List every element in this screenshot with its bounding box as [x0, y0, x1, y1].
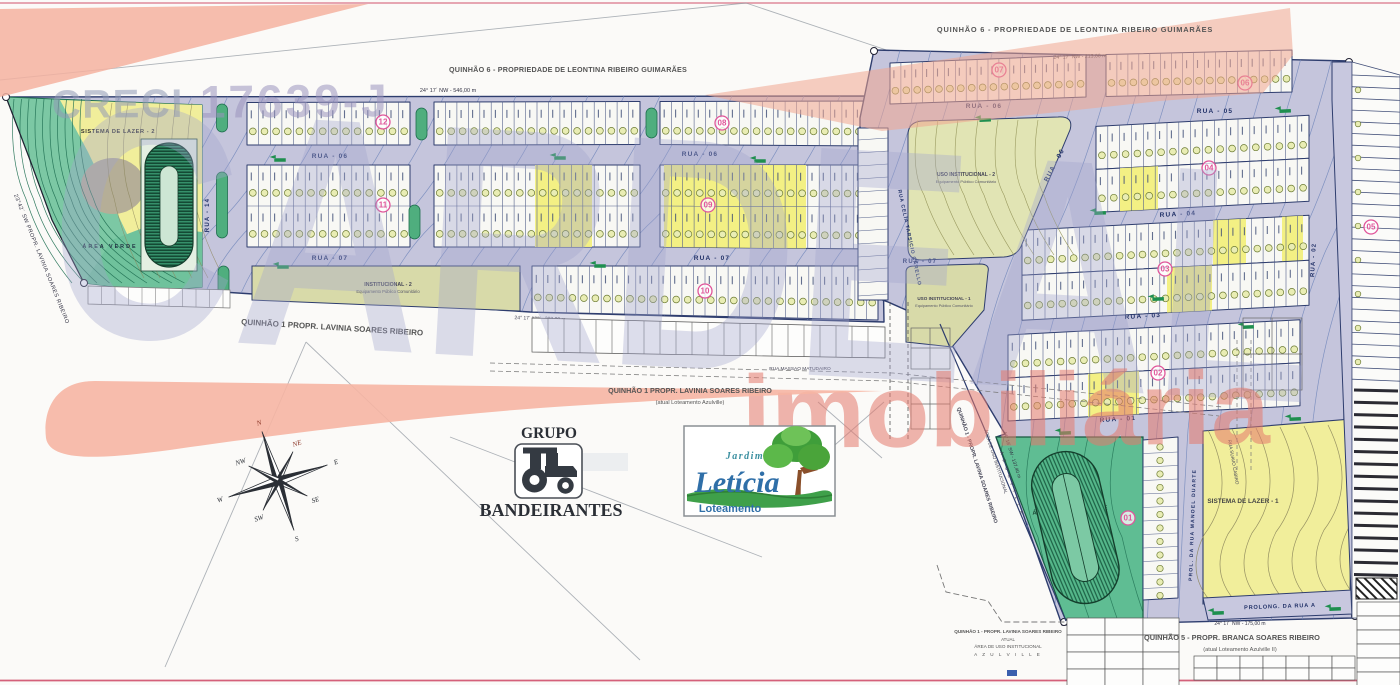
- svg-text:01: 01: [1124, 514, 1133, 523]
- svg-text:QUINHÃO 1 - PROPR. LAVINIA SOA: QUINHÃO 1 - PROPR. LAVINIA SOARES RIBEIR…: [954, 628, 1062, 634]
- svg-text:QUINHÃO 1 PROPR. LAVINIA SOARE: QUINHÃO 1 PROPR. LAVINIA SOARES RIBEIRO: [608, 386, 772, 395]
- svg-text:Jardim: Jardim: [725, 451, 764, 462]
- svg-text:QUINHÃO 5 - PROPR. BRANCA SOAR: QUINHÃO 5 - PROPR. BRANCA SOARES RIBEIRO: [1144, 633, 1320, 642]
- svg-text:SISTEMA DE LAZER - 1: SISTEMA DE LAZER - 1: [1207, 498, 1279, 505]
- svg-text:Loteamento: Loteamento: [699, 503, 762, 515]
- svg-text:(atual Loteamento Azulville I: (atual Loteamento Azulville II): [1203, 647, 1277, 653]
- svg-text:24° 17´ NW - 175,00 m: 24° 17´ NW - 175,00 m: [1214, 621, 1265, 627]
- svg-text:17639-J: 17639-J: [200, 74, 390, 128]
- svg-text:QUINHÃO 6 - PROPRIEDADE DE LEO: QUINHÃO 6 - PROPRIEDADE DE LEONTINA RIBE…: [449, 65, 687, 74]
- svg-text:CRECI: CRECI: [52, 82, 184, 127]
- svg-text:ÁREA DE USO INSTITUCIONAL: ÁREA DE USO INSTITUCIONAL: [974, 643, 1042, 649]
- svg-text:ATUAL: ATUAL: [1001, 637, 1015, 642]
- svg-text:A Z U L V I L L E: A Z U L V I L L E: [974, 652, 1042, 657]
- svg-text:05: 05: [1367, 223, 1376, 232]
- svg-text:GRUPO: GRUPO: [521, 425, 577, 442]
- svg-text:QUINHÃO 6 - PROPRIEDADE DE LEO: QUINHÃO 6 - PROPRIEDADE DE LEONTINA RIBE…: [937, 25, 1213, 34]
- svg-text:BANDEIRANTES: BANDEIRANTES: [479, 500, 622, 520]
- svg-text:Letícia: Letícia: [694, 466, 780, 499]
- svg-text:(atual Loteamento Azulville): (atual Loteamento Azulville): [656, 400, 725, 406]
